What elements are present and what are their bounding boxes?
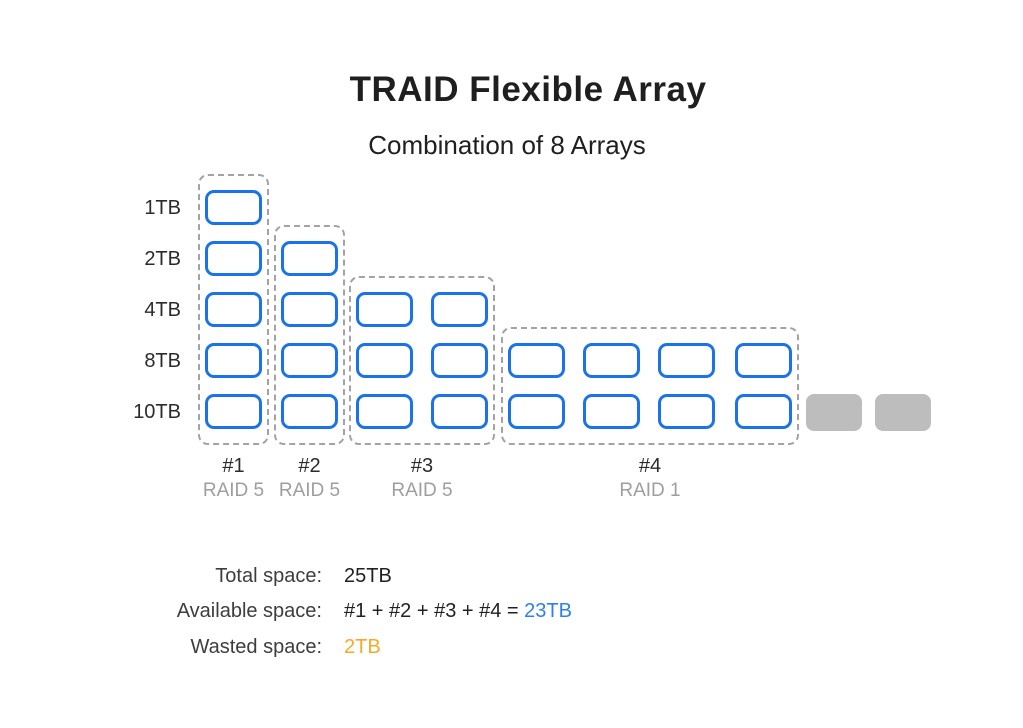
disk-slice [356,343,413,378]
disk-capacity-label: 10TB [90,399,181,425]
page-title: TRAID Flexible Array [0,70,1023,110]
disk-slice [508,394,565,429]
disk-capacity-label: 8TB [90,348,181,374]
array-raid-label: RAID 5 [362,480,482,502]
disk-slice [205,343,262,378]
page-subtitle: Combination of 8 Arrays [0,130,1014,161]
array-id-label: #2 [250,455,370,477]
disk-slice [356,394,413,429]
disk-slice [356,292,413,327]
stat-value: 2TB [344,634,381,660]
stat-label: Available space: [60,598,322,624]
stat-value-amount: 25TB [344,565,392,587]
disk-slice [205,190,262,225]
disk-slice [735,394,792,429]
stat-label: Total space: [60,563,322,589]
disk-slice [658,343,715,378]
stat-value-amount: 23TB [524,600,572,622]
disk-slice [431,343,488,378]
disk-slice [583,394,640,429]
disk-slice [508,343,565,378]
disk-slice [205,292,262,327]
disk-slice [431,394,488,429]
disk-slice [431,292,488,327]
disk-slice [205,394,262,429]
stat-value: #1 + #2 + #3 + #4 = 23TB [344,598,572,624]
wasted-space-block [806,394,862,431]
disk-slice [281,343,338,378]
stat-label: Wasted space: [60,634,322,660]
stat-value-amount: 2TB [344,636,381,658]
array-raid-label: RAID 5 [250,480,370,502]
disk-slice [281,241,338,276]
disk-slice [281,292,338,327]
disk-slice [583,343,640,378]
disk-capacity-label: 4TB [90,297,181,323]
disk-slice [735,343,792,378]
disk-capacity-label: 2TB [90,246,181,272]
disk-slice [281,394,338,429]
stat-value: 25TB [344,563,392,589]
wasted-space-block [875,394,931,431]
array-id-label: #4 [590,455,710,477]
stat-value-prefix: #1 + #2 + #3 + #4 = [344,600,524,622]
disk-capacity-label: 1TB [90,195,181,221]
disk-slice [658,394,715,429]
array-id-label: #3 [362,455,482,477]
array-raid-label: RAID 1 [590,480,710,502]
disk-slice [205,241,262,276]
